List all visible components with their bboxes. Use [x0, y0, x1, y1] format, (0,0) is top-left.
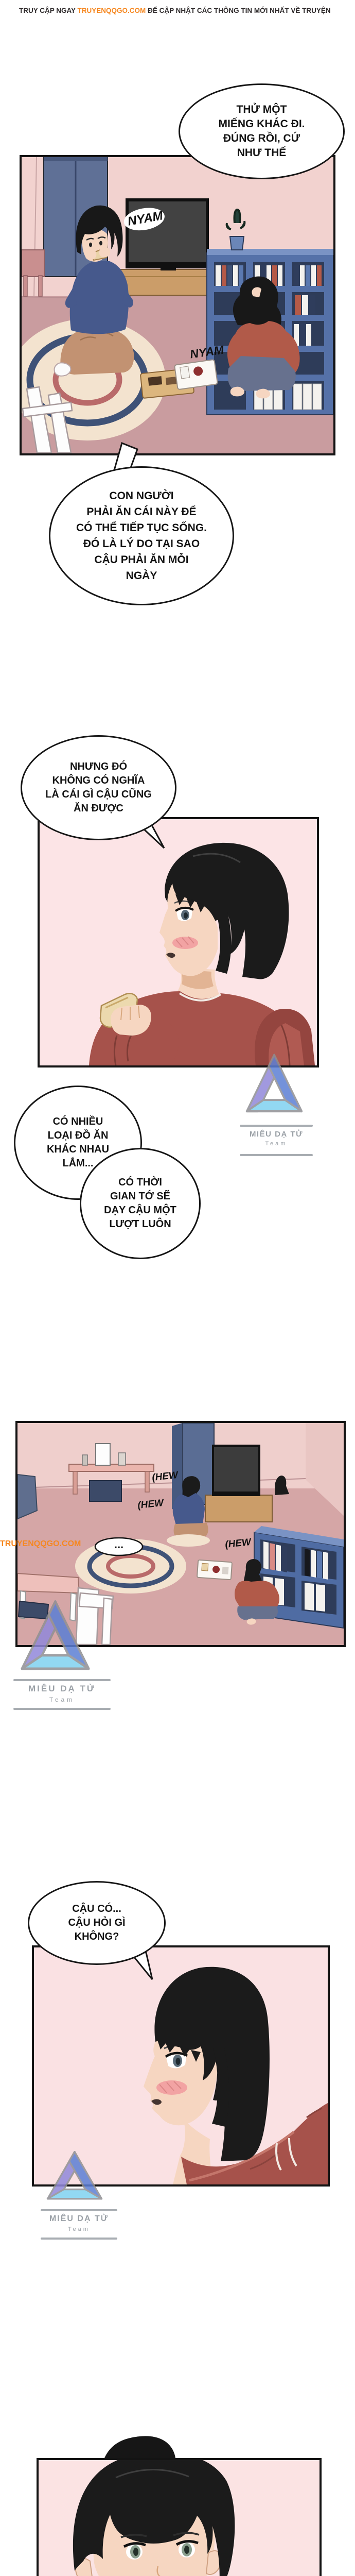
- svg-text:...: ...: [114, 1538, 123, 1551]
